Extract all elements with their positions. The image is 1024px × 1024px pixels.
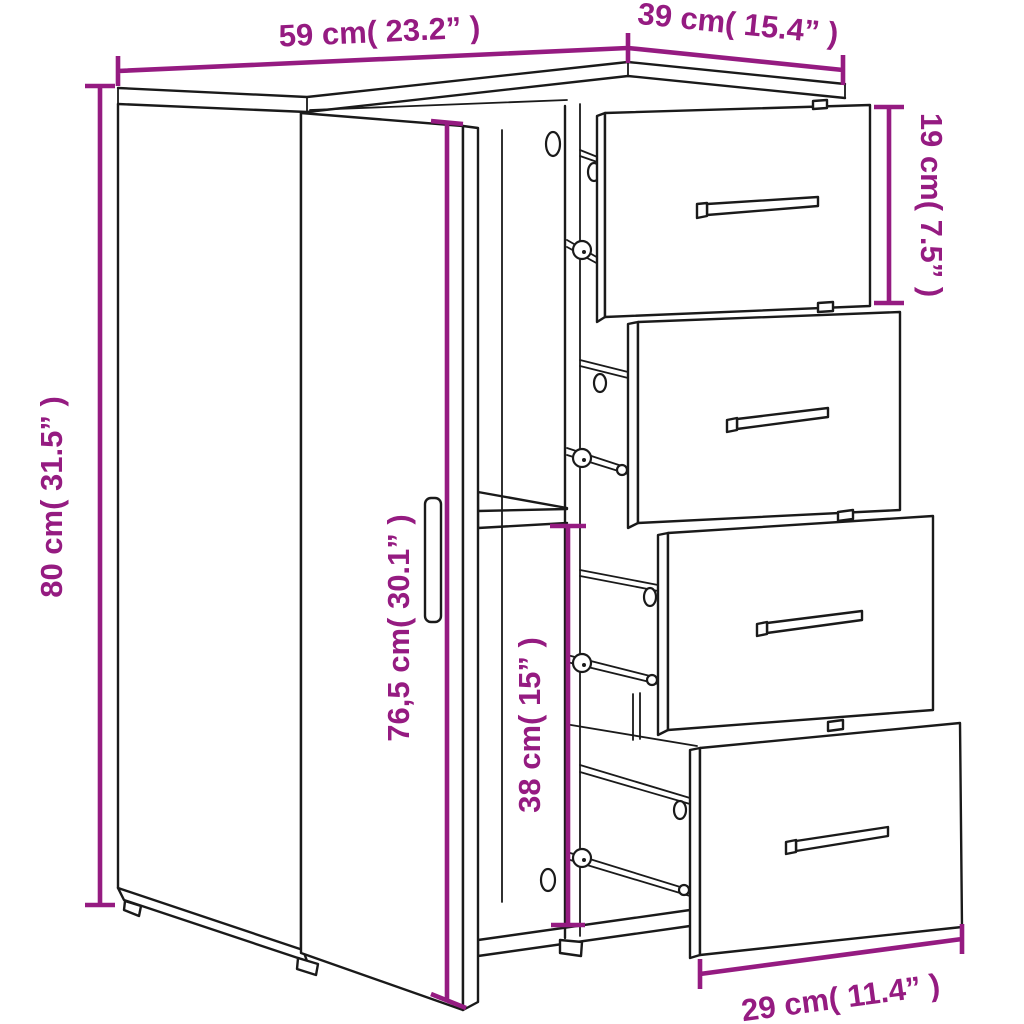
drawer-2 (567, 302, 900, 528)
drawer-3-roller-top (644, 588, 656, 606)
opening-ceiling-edge (310, 100, 567, 110)
drawer-2-roller-top (594, 374, 606, 392)
drawer-1-roller-big (573, 241, 591, 259)
drawer-4-roller-top (674, 801, 686, 819)
drawer-3-handle-cap (757, 622, 767, 636)
drawer-2-roller-big (573, 449, 591, 467)
product-dimension-diagram: 59 cm( 23.2” ) 39 cm( 15.4” ) 19 cm( 7.5… (0, 0, 1024, 1024)
divider-stub-lines (633, 693, 640, 740)
drawer-4-roller-small (679, 885, 689, 895)
drawer-3-screw (582, 663, 586, 667)
shelf-edges (478, 492, 567, 528)
dimension-drawer-height: 19 cm( 7.5” ) (874, 107, 949, 303)
drawer-4-edge-strip (690, 748, 700, 958)
sideboard-diagram-svg: 59 cm( 23.2” ) 39 cm( 15.4” ) 19 cm( 7.5… (0, 0, 1024, 1024)
drawer-4-slide-tab (828, 720, 843, 731)
door-edge-strip (463, 126, 478, 1010)
dimension-compartment-height-label: 38 cm( 15” ) (512, 637, 547, 813)
drawer-4-rails (567, 765, 690, 896)
bottom-panel-edges (478, 910, 690, 956)
foot-middle (560, 940, 582, 956)
dimension-height: 80 cm( 31.5” ) (34, 86, 115, 905)
dimension-drawer-width-label: 29 cm( 11.4” ) (739, 967, 942, 1024)
dimension-door-height-label: 76,5 cm( 30.1” ) (381, 514, 416, 741)
foot-front-left (297, 958, 318, 975)
drawer-2-roller-small (617, 465, 627, 475)
drawer-4-roller-big (573, 849, 591, 867)
drawer-3-edge-strip (658, 533, 668, 735)
dimension-width: 59 cm( 23.2” ) (118, 9, 628, 86)
base-strip (118, 888, 307, 961)
drawer-1-handle-cap (697, 203, 707, 218)
drawer-3 (567, 510, 933, 735)
drawer-4-handle-cap (786, 840, 796, 854)
dimension-height-label: 80 cm( 31.5” ) (34, 396, 69, 598)
dimension-drawer-height-line (874, 107, 904, 303)
drawer-1-screw (582, 250, 586, 254)
shelf-pin-hole-bottom (541, 869, 555, 891)
dimension-height-line (85, 86, 115, 905)
door-handle (425, 498, 441, 622)
dimension-drawer-height-label: 19 cm( 7.5” ) (914, 113, 949, 297)
drawer-2-handle-cap (727, 418, 737, 432)
drawer-2-edge-strip (628, 322, 638, 528)
drawer-1-slide-tab (813, 100, 827, 109)
shelf-pin-hole-top (546, 132, 560, 156)
drawer-3-roller-small (647, 675, 657, 685)
drawer-4 (567, 720, 962, 958)
drawer-2-slide-tab (818, 302, 833, 312)
drawer-2-screw (582, 458, 586, 462)
drawer-3-roller-big (573, 654, 591, 672)
drawer-4-screw (582, 858, 586, 862)
dimension-width-label: 59 cm( 23.2” ) (278, 9, 481, 53)
drawer-1 (567, 100, 870, 322)
dimension-depth-label: 39 cm( 15.4” ) (636, 0, 840, 51)
drawer-3-slide-tab (838, 510, 853, 521)
